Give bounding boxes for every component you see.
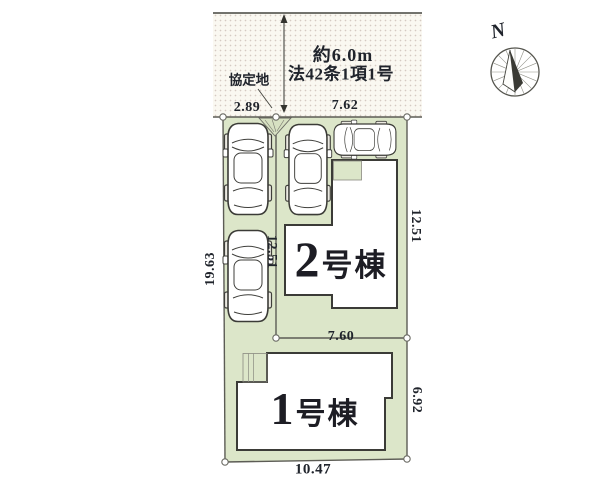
dimension-inner-vertical: 12.51 — [264, 235, 278, 269]
compass-icon — [491, 48, 539, 96]
building-1-label: 1 号棟 — [240, 386, 390, 432]
site-plan-canvas: 約6.0m 法42条1項1号 協定地 2.89 7.62 19.63 12.51… — [0, 0, 600, 489]
building-1-suffix: 号棟 — [296, 400, 360, 430]
building-2-label: 2 号棟 — [285, 234, 397, 284]
road-width-label: 約6.0m — [313, 46, 374, 64]
dimension-right-lower: 6.92 — [409, 387, 423, 414]
dimension-bottom: 10.47 — [295, 463, 331, 478]
car-icon — [334, 120, 396, 159]
dimension-top-right: 7.62 — [332, 99, 359, 113]
dimension-right-upper: 12.51 — [408, 209, 422, 243]
building-1-number: 1 — [271, 386, 294, 432]
dimension-top-left: 2.89 — [234, 101, 261, 115]
agreement-land-label: 協定地 — [229, 73, 270, 87]
dimension-middle-horizontal: 7.60 — [328, 330, 355, 344]
car-icon — [284, 124, 332, 214]
dimension-left-side: 19.63 — [204, 252, 218, 286]
road-law-label: 法42条1項1号 — [288, 66, 394, 83]
road-width-arrow — [281, 14, 288, 113]
car-icon — [223, 124, 273, 215]
building-2-entry-notch — [334, 161, 362, 180]
building-2-suffix: 号棟 — [322, 250, 388, 281]
building-2-number: 2 — [295, 234, 320, 284]
